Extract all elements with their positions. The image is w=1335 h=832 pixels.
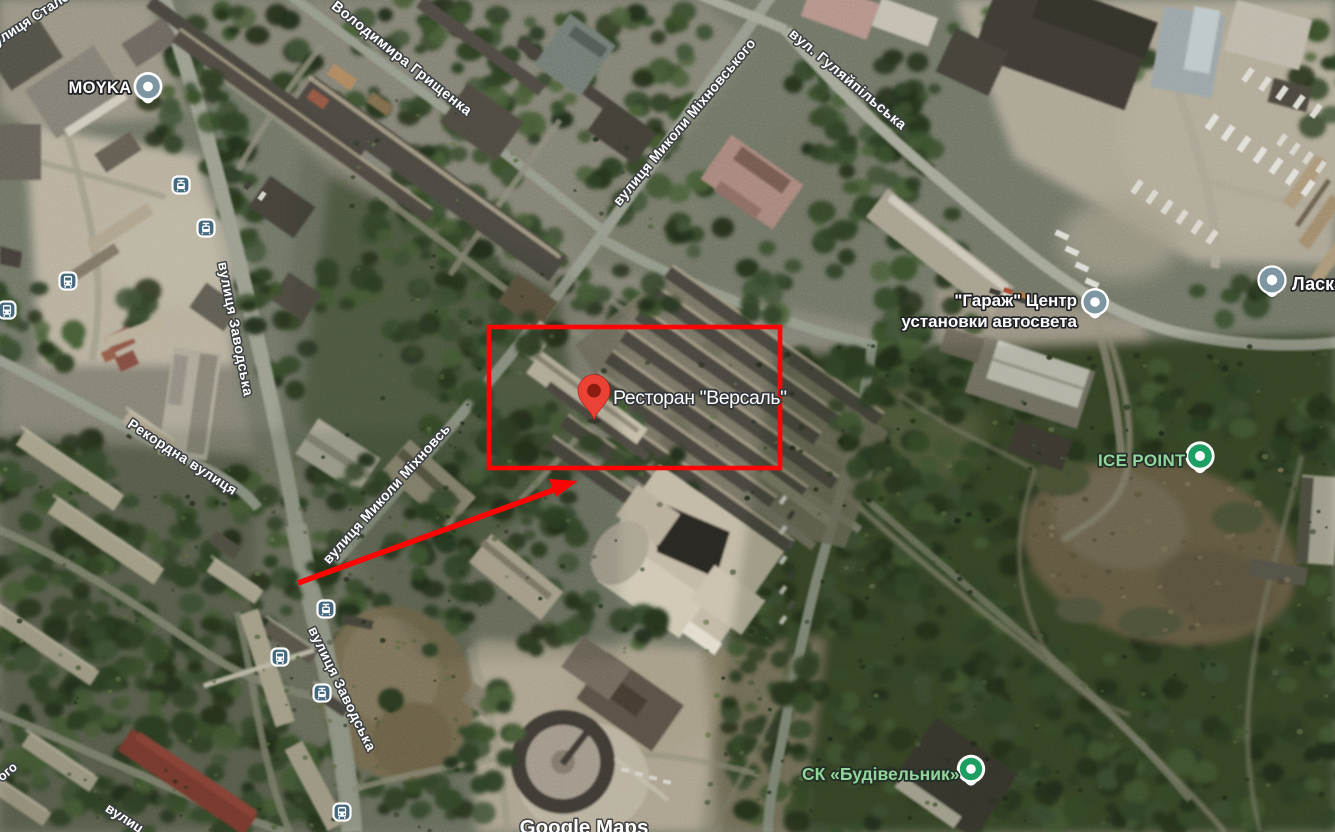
svg-text:"Гараж" Центр: "Гараж" Центр — [954, 291, 1077, 310]
svg-text:установки автосвета: установки автосвета — [901, 312, 1077, 331]
svg-text:Ласка: Ласка — [1292, 274, 1335, 294]
svg-text:MOYKA: MOYKA — [69, 79, 132, 97]
svg-text:Google Maps: Google Maps — [520, 816, 649, 832]
svg-text:ICE POINT: ICE POINT — [1098, 451, 1186, 470]
svg-text:СК «Будівельник»: СК «Будівельник» — [802, 764, 959, 784]
svg-text:Ресторан "Версаль": Ресторан "Версаль" — [613, 387, 787, 409]
